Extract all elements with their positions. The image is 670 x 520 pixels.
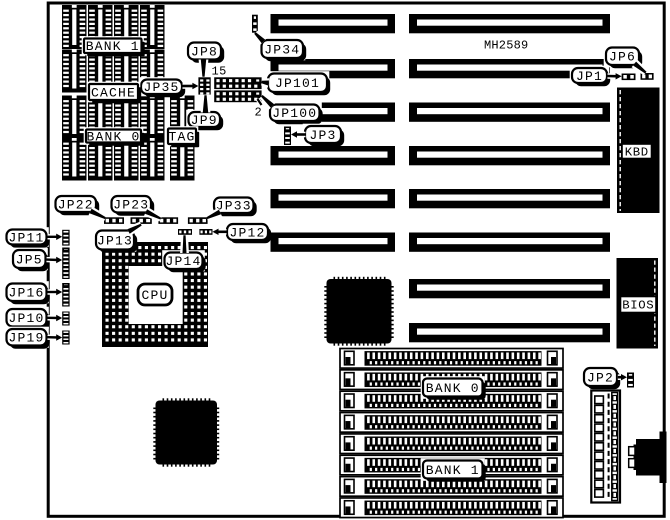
- svg-text:JP100: JP100: [272, 106, 317, 121]
- svg-text:JP22: JP22: [58, 197, 94, 212]
- svg-text:BANK 0: BANK 0: [426, 381, 480, 396]
- svg-text:BANK 0: BANK 0: [86, 129, 140, 144]
- svg-text:JP16: JP16: [8, 286, 44, 301]
- svg-text:15: 15: [212, 65, 227, 79]
- svg-text:JP34: JP34: [264, 42, 300, 57]
- svg-text:JP6: JP6: [609, 50, 636, 65]
- svg-text:CPU: CPU: [141, 288, 168, 303]
- svg-text:BANK 1: BANK 1: [86, 39, 140, 54]
- svg-text:JP2: JP2: [587, 370, 614, 385]
- svg-text:JP8: JP8: [191, 44, 218, 59]
- svg-text:KBD: KBD: [625, 145, 649, 159]
- svg-text:JP101: JP101: [275, 76, 320, 91]
- svg-text:JP19: JP19: [8, 331, 44, 346]
- svg-text:JP5: JP5: [16, 252, 43, 267]
- svg-text:BIOS: BIOS: [622, 299, 654, 313]
- svg-text:TAG: TAG: [168, 130, 195, 145]
- svg-text:JP23: JP23: [113, 198, 149, 213]
- svg-text:JP1: JP1: [576, 69, 603, 84]
- svg-text:JP9: JP9: [191, 113, 218, 128]
- svg-text:JP35: JP35: [143, 80, 179, 95]
- svg-text:MH2589: MH2589: [484, 39, 528, 53]
- svg-text:JP13: JP13: [97, 233, 133, 248]
- svg-text:CACHE: CACHE: [91, 85, 136, 100]
- svg-text:JP3: JP3: [309, 128, 336, 143]
- svg-text:BANK 1: BANK 1: [426, 463, 480, 478]
- svg-text:JP14: JP14: [165, 254, 201, 269]
- svg-text:JP10: JP10: [8, 311, 44, 326]
- svg-text:JP11: JP11: [8, 230, 44, 245]
- svg-text:JP33: JP33: [216, 199, 252, 214]
- svg-text:2: 2: [255, 106, 262, 120]
- svg-text:JP12: JP12: [229, 225, 265, 240]
